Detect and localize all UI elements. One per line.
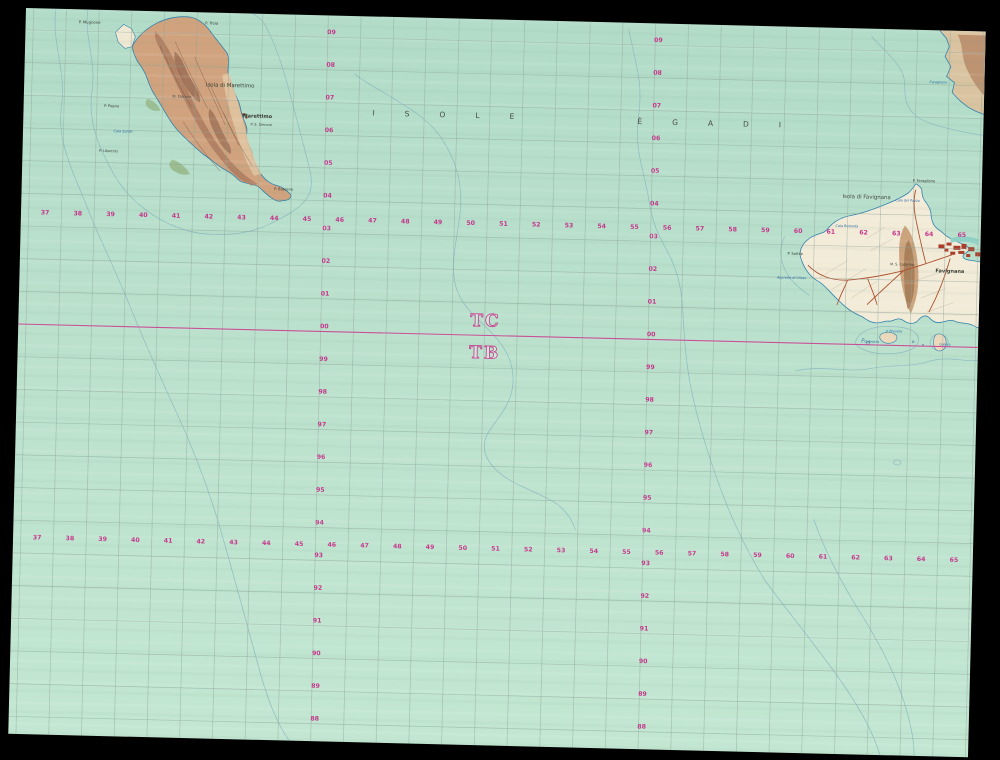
archipelago-label-part1: ISOLE (372, 108, 544, 121)
easting-label: 44 (262, 540, 271, 547)
northing-label: 00 (320, 323, 329, 330)
northing-label: 07 (652, 102, 661, 109)
easting-label: 41 (172, 213, 181, 220)
easting-label: 60 (794, 228, 803, 235)
easting-label: 64 (925, 231, 934, 238)
grid-line-vertical (409, 18, 427, 744)
grid-line-horizontal (9, 716, 969, 739)
grid-line-vertical (573, 22, 591, 748)
zone-label-tb: TB (469, 343, 501, 364)
northing-label: 98 (318, 389, 327, 396)
place-label: Faraglione (929, 80, 947, 84)
easting-label: 57 (696, 225, 705, 232)
northing-label: 89 (638, 691, 647, 698)
grid-line-vertical (736, 26, 754, 752)
easting-label: 39 (106, 211, 115, 218)
northing-label: 96 (317, 454, 326, 461)
grid-line-vertical (278, 15, 296, 741)
northing-label: 04 (650, 200, 659, 207)
northing-label: 96 (644, 462, 653, 469)
easting-label: 62 (851, 554, 860, 561)
easting-label: 41 (164, 538, 173, 545)
utm-grid-labels: 3738394041424344454647484950515253545556… (29, 22, 971, 738)
easting-label: 37 (33, 534, 42, 541)
grid-line-vertical (769, 27, 787, 753)
place-label: Cala Rotonda (835, 224, 858, 229)
grid-line-horizontal (12, 586, 972, 609)
easting-label: 62 (859, 229, 868, 236)
grid-line-vertical (605, 23, 623, 749)
easting-label: 58 (720, 551, 729, 558)
grid-line-horizontal (13, 520, 973, 543)
easting-label: 48 (401, 218, 410, 225)
grid-line-horizontal (23, 128, 983, 151)
easting-label: 54 (589, 548, 598, 555)
bathymetric-contour (343, 74, 586, 530)
northing-label: 05 (324, 160, 333, 167)
northing-label: 03 (322, 225, 331, 232)
northing-label: 00 (647, 331, 656, 338)
northing-label: 89 (311, 683, 320, 690)
grid-line-vertical (965, 31, 983, 757)
place-label: P. Sottile (787, 252, 803, 256)
place-label: P. Bassana (274, 187, 293, 191)
northing-label: 09 (654, 37, 663, 44)
northing-label: 99 (646, 364, 655, 371)
place-label: P. Libeccio (99, 149, 118, 153)
easting-label: 60 (786, 553, 795, 560)
northing-label: 09 (327, 29, 336, 36)
grid-line-horizontal (16, 422, 976, 445)
marettimo-vegetation-patch (169, 160, 190, 175)
easting-label: 40 (131, 537, 140, 544)
place-label: I. Galeotta (861, 340, 879, 344)
grid-line-vertical (900, 30, 918, 756)
northing-label: 99 (319, 356, 328, 363)
northing-label: 97 (318, 421, 327, 428)
easting-label: 59 (761, 227, 770, 234)
favignana-landmass (798, 181, 985, 332)
northing-label: 94 (315, 519, 324, 526)
grid-line-vertical (376, 17, 394, 743)
easting-label: 52 (532, 221, 541, 228)
place-label: Galera (939, 342, 950, 346)
easting-label: 40 (139, 212, 148, 219)
easting-label: 54 (597, 223, 606, 230)
place-label: Isola di Favignana (842, 194, 890, 201)
grid-line-vertical (49, 9, 67, 735)
grid-line-horizontal (21, 193, 981, 216)
easting-label: 52 (524, 546, 533, 553)
easting-label: 55 (630, 224, 639, 231)
bathymetric-contour (762, 582, 884, 755)
easting-label: 50 (458, 545, 467, 552)
northing-label: 91 (640, 625, 649, 632)
grid-line-horizontal (9, 684, 969, 707)
place-label: P. Mugnone (79, 19, 101, 25)
marettimo-island (111, 15, 295, 202)
easting-label: 65 (949, 557, 958, 564)
easting-label: 47 (360, 542, 369, 549)
easting-label: 59 (753, 552, 762, 559)
northing-label: 90 (312, 650, 321, 657)
northing-label: 88 (637, 723, 646, 730)
marettimo-white-cape (115, 24, 136, 48)
northing-label: 01 (321, 290, 330, 297)
grid-line-vertical (114, 11, 132, 737)
grid-line-vertical (671, 24, 689, 750)
northing-label: 02 (648, 266, 657, 273)
easting-label: 47 (368, 217, 377, 224)
grid-line-vertical (16, 8, 34, 734)
northing-label: 98 (645, 397, 654, 404)
grid-line-horizontal (17, 389, 977, 412)
northing-label: 08 (653, 70, 662, 77)
easting-label: 39 (98, 536, 107, 543)
northing-label: 08 (326, 62, 335, 69)
easting-label: 37 (41, 209, 50, 216)
preveto-islet (880, 332, 897, 344)
grid-line-vertical (474, 19, 492, 745)
grid-line-vertical (867, 29, 885, 755)
place-label: P. Troia (205, 20, 218, 25)
easting-label: 51 (499, 221, 508, 228)
easting-label: 38 (73, 210, 82, 217)
northing-label: 90 (639, 658, 648, 665)
northing-label: 07 (325, 94, 334, 101)
northing-label: 92 (314, 585, 323, 592)
easting-label: 46 (335, 217, 344, 224)
small-rock (912, 341, 914, 343)
easting-label: 53 (565, 222, 574, 229)
easting-label: 63 (892, 230, 901, 237)
place-label: Cala Sarde (113, 129, 132, 133)
place-label: Favignana (935, 268, 964, 275)
northing-label: 06 (652, 135, 661, 142)
easting-label: 64 (917, 556, 926, 563)
easting-label: 50 (466, 220, 475, 227)
grid-line-vertical (81, 10, 99, 736)
zone-label-tc: TC (470, 311, 501, 332)
place-label: M. Falcone (172, 95, 192, 99)
easting-label: 38 (65, 535, 74, 542)
easting-label: 43 (229, 539, 238, 546)
grid-line-vertical (802, 27, 820, 753)
easting-label: 58 (728, 226, 737, 233)
place-label: Cala del Pozzo (895, 198, 920, 203)
grid-line-horizontal (10, 651, 970, 674)
grid-line-vertical (704, 25, 722, 751)
northing-label: 05 (651, 168, 660, 175)
easting-label: 61 (819, 554, 828, 561)
grid-line-vertical (343, 16, 361, 742)
easting-label: 48 (393, 543, 402, 550)
grid-line-horizontal (14, 487, 974, 510)
easting-label: 49 (426, 544, 435, 551)
easting-label: 65 (957, 232, 966, 239)
grid-line-horizontal (15, 455, 975, 478)
grid-line-vertical (507, 20, 525, 746)
northing-label: 01 (648, 298, 657, 305)
easting-label: 49 (434, 219, 443, 226)
northing-label: 93 (641, 560, 650, 567)
map-paper: 3738394041424344454647484950515253545556… (8, 8, 985, 757)
northing-label: 95 (316, 487, 325, 494)
easting-label: 63 (884, 555, 893, 562)
archipelago-label-part2: ÈGADI (637, 117, 811, 130)
northing-label: 93 (314, 552, 323, 559)
northing-label: 94 (642, 527, 651, 534)
northing-label: 03 (649, 233, 658, 240)
place-label: Approdo di Ulisse (776, 275, 807, 280)
grid-line-horizontal (13, 553, 973, 576)
bathymetric-contour (795, 355, 977, 375)
place-label: P. Pegna (104, 104, 119, 108)
easting-label: 56 (663, 225, 672, 232)
easting-label: 45 (295, 541, 304, 548)
northing-label: 04 (323, 192, 332, 199)
grid-line-vertical (311, 15, 329, 741)
offshore-rock-contour (894, 460, 901, 465)
grid-line-vertical (147, 11, 165, 737)
easting-label: 56 (655, 550, 664, 557)
place-label: M. S. Caterina (890, 262, 914, 267)
easting-label: 45 (303, 216, 312, 223)
easting-label: 57 (688, 550, 697, 557)
levanzo-island-fragment (938, 30, 986, 114)
easting-label: 61 (826, 229, 835, 236)
grid-line-vertical (638, 23, 656, 749)
easting-label: 55 (622, 549, 631, 556)
easting-label: 51 (491, 546, 500, 553)
photo-background: 3738394041424344454647484950515253545556… (0, 0, 1000, 760)
place-label: P. S. Simone (250, 123, 271, 128)
northing-label: 97 (644, 429, 653, 436)
grid-line-horizontal (11, 618, 971, 641)
northing-label: 88 (310, 715, 319, 722)
northing-label: 95 (643, 495, 652, 502)
northing-label: 06 (325, 127, 334, 134)
northing-label: 92 (640, 593, 649, 600)
grid-line-horizontal (22, 161, 982, 184)
easting-label: 42 (196, 538, 205, 545)
place-label: Marettimo (243, 113, 273, 120)
grid-line-vertical (933, 31, 951, 757)
map-svg: 3738394041424344454647484950515253545556… (8, 8, 985, 757)
place-label: Il Preveto (886, 329, 902, 333)
easting-label: 43 (237, 214, 246, 221)
favignana-island (798, 181, 985, 332)
place-label: P. Faraglione (913, 179, 936, 184)
place-label: Isola di Marettimo (206, 82, 255, 89)
northing-label: 02 (322, 258, 331, 265)
grid-line-vertical (540, 21, 558, 747)
easting-label: 44 (270, 215, 279, 222)
grid-line-vertical (442, 19, 460, 745)
easting-label: 53 (557, 547, 566, 554)
easting-label: 42 (204, 213, 213, 220)
grid-line-vertical (834, 28, 852, 754)
easting-label: 46 (327, 542, 336, 549)
northing-label: 91 (313, 617, 322, 624)
